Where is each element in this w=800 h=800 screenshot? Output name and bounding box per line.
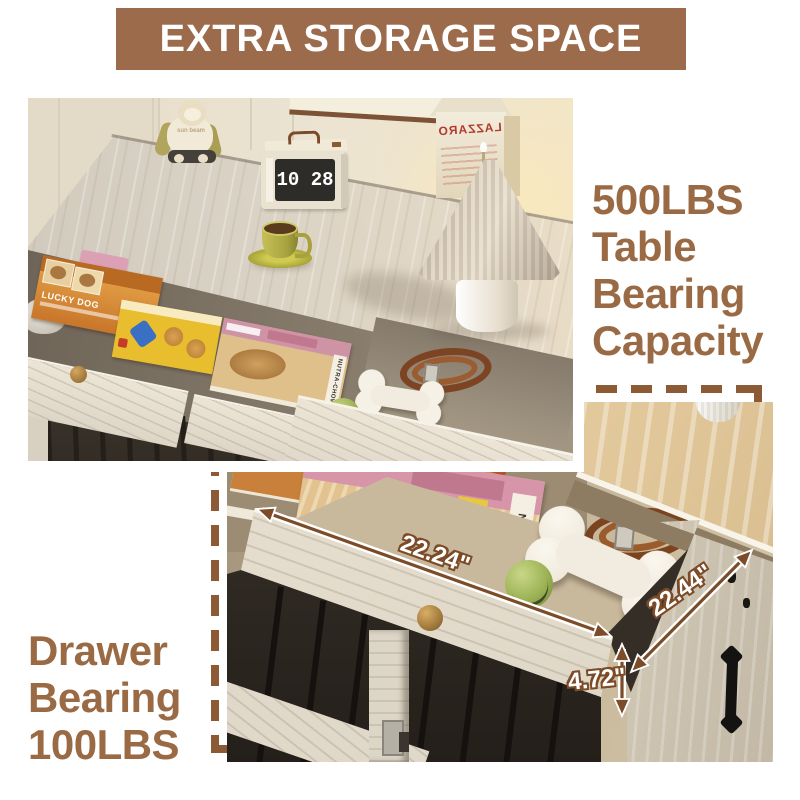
callout-line: Bearing (28, 674, 181, 721)
clock-time: 10 28 (276, 169, 333, 191)
flip-clock-slot (266, 158, 273, 202)
callout-table-capacity: 500LBS Table Bearing Capacity (592, 176, 763, 364)
callout-line: 100LBS (28, 721, 181, 768)
flip-clock-button (332, 142, 341, 147)
picture-frame (289, 98, 442, 124)
callout-drawer-capacity: Drawer Bearing 100LBS (28, 627, 181, 768)
door-latch (399, 732, 409, 752)
callout-line: Bearing (592, 270, 763, 317)
callout-line: Capacity (592, 317, 763, 364)
biscuit-image (185, 338, 207, 360)
drawer-knob (417, 605, 443, 631)
plush-toy-hand (198, 154, 208, 163)
cup-handle (295, 233, 312, 258)
callout-line: Drawer (28, 627, 181, 674)
plush-toy-hand (174, 154, 184, 163)
flip-clock-handle (288, 130, 320, 144)
callout-line: Table (592, 223, 763, 270)
flip-clock-side (341, 154, 348, 208)
banner-title: EXTRA STORAGE SPACE (160, 18, 643, 61)
biscuit-logo (129, 319, 158, 348)
wall-groove (250, 98, 252, 150)
lamp-base (456, 276, 518, 332)
biscuit-image (163, 326, 185, 348)
flip-clock-display: 10 28 (275, 159, 335, 201)
plush-toy-text: sun beam (174, 128, 208, 134)
plush-toy-face (184, 108, 201, 121)
puppy-photo (49, 265, 67, 281)
main-photo-room: LUCKY DOG NUTRA-CHOW (28, 98, 573, 461)
drawer-knob (70, 366, 87, 383)
coffee-surface (262, 221, 298, 236)
promo-banner: EXTRA STORAGE SPACE (116, 8, 686, 70)
magazine-dog-photo (229, 348, 287, 381)
callout-line: 500LBS (592, 176, 763, 223)
hinge-dot (743, 598, 750, 608)
page: EXTRA STORAGE SPACE NUTRA-CHOW (0, 0, 800, 800)
puppy-photo (78, 272, 96, 288)
